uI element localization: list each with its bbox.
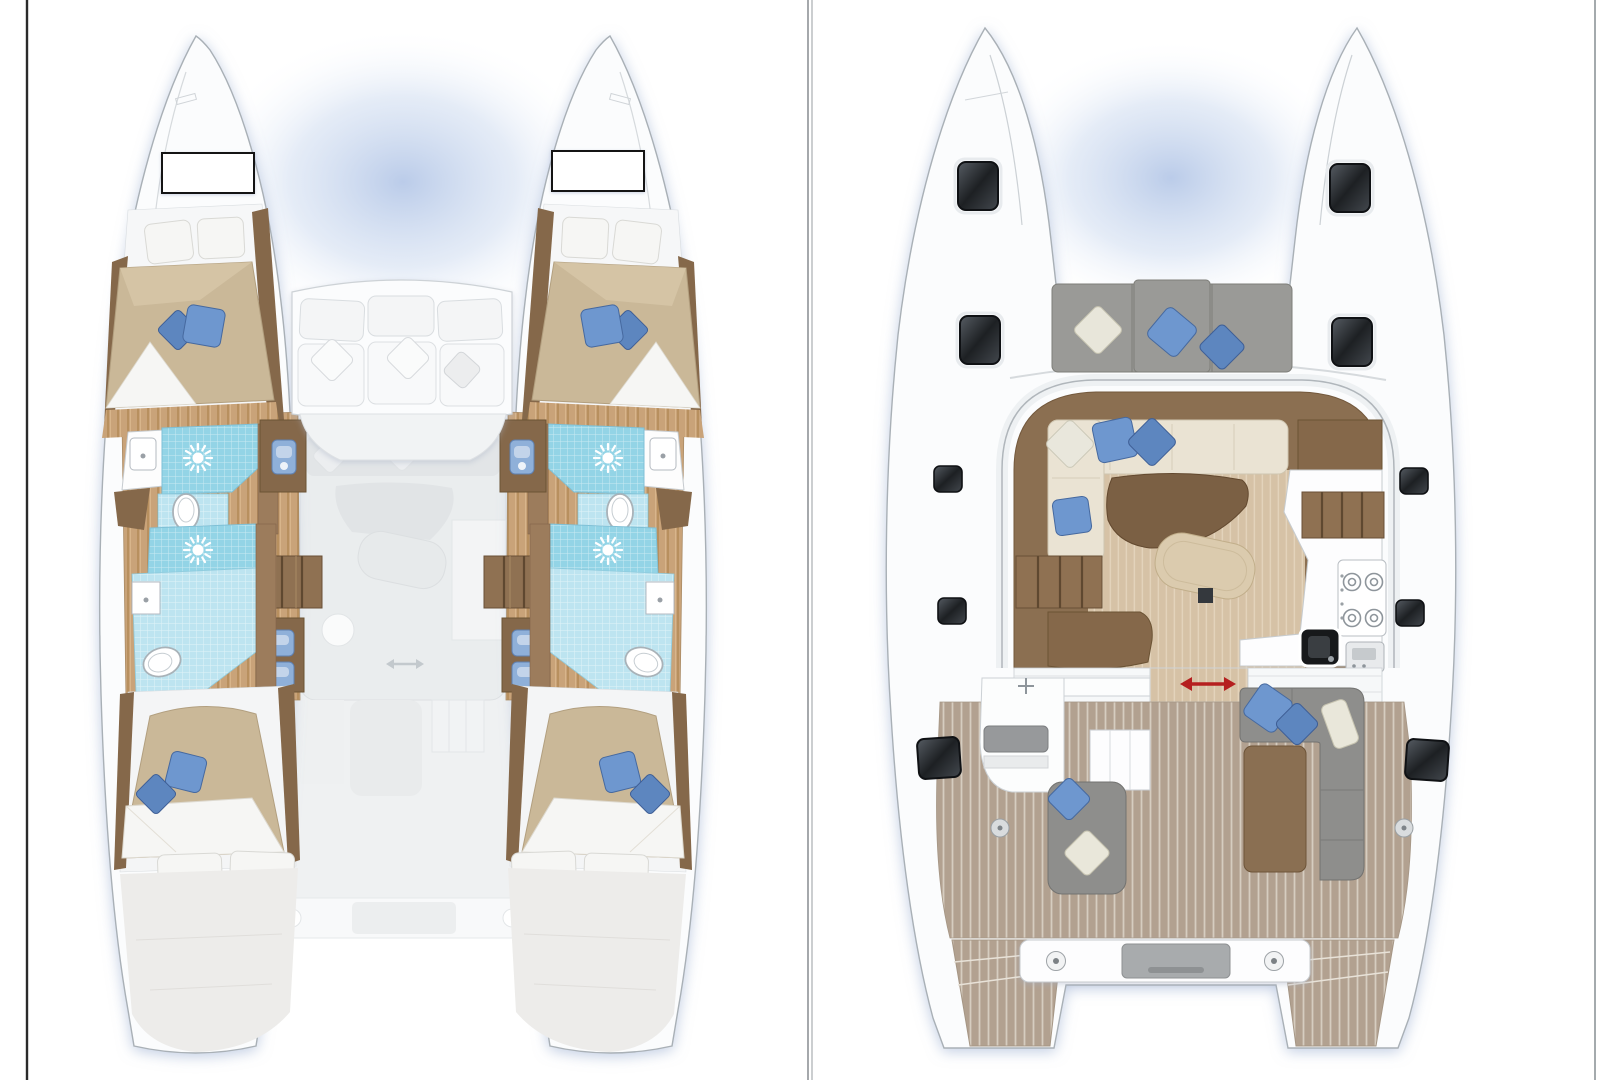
berth-label-starboard <box>551 150 645 192</box>
toilet-icon <box>173 494 199 530</box>
port-stairs <box>1016 556 1102 608</box>
bow-sunbed <box>1052 280 1292 372</box>
cockpit-steps <box>1090 730 1150 790</box>
faded-salon-table <box>335 482 453 540</box>
helm-bench <box>984 726 1048 752</box>
blue-pillow <box>182 304 226 348</box>
stern-deck-faded <box>120 868 298 1052</box>
main-deck-panel <box>886 28 1455 1048</box>
starboard-stairs <box>1302 492 1384 538</box>
cockpit-table <box>1244 746 1306 872</box>
blue-pillow <box>1052 496 1093 537</box>
bow-sofa <box>292 280 512 460</box>
bed-pillow <box>144 219 195 264</box>
catamaran-layout-plan <box>0 0 1620 1080</box>
faded-fridge <box>322 614 354 646</box>
salon-cabin <box>1002 380 1394 672</box>
bed-pillow <box>197 217 245 259</box>
floor-fitting <box>1198 588 1213 603</box>
fridge-cabinet <box>1048 612 1152 669</box>
transom-bar <box>1020 940 1310 982</box>
forward-cabin <box>102 204 284 438</box>
cockpit <box>937 678 1414 1046</box>
galley-cabinet <box>1298 420 1382 470</box>
aft-cabin <box>114 684 300 897</box>
berth-label-port <box>161 152 255 194</box>
